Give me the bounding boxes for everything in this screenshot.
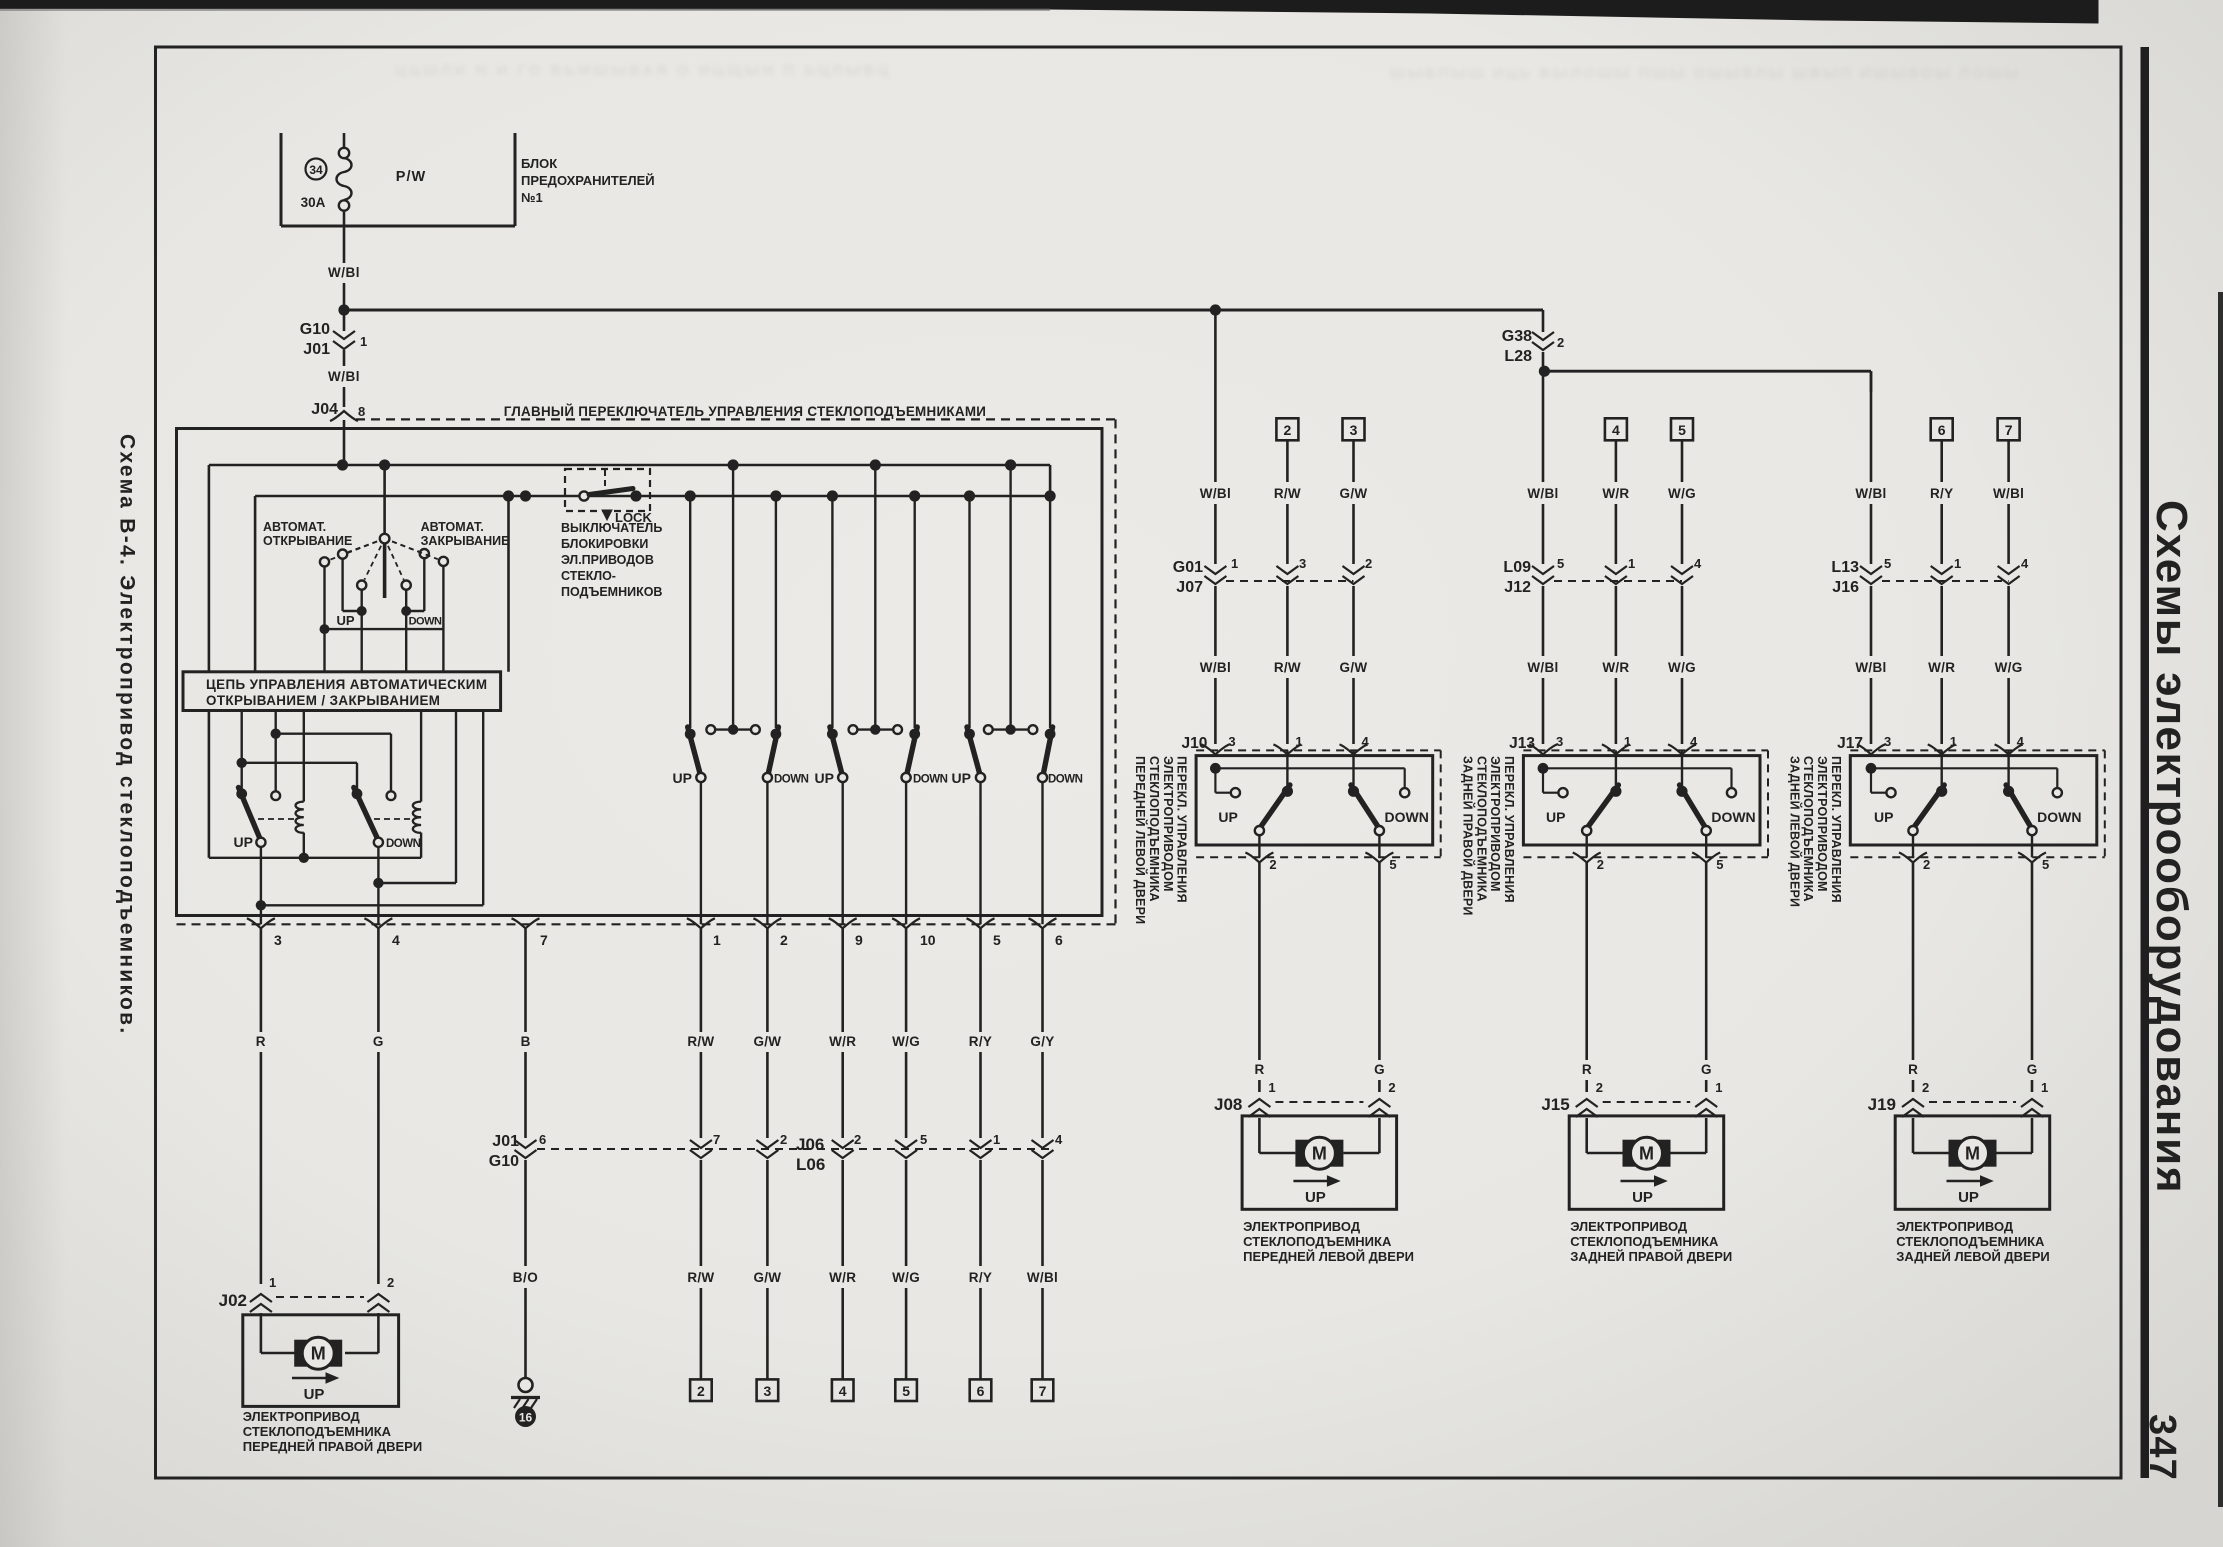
svg-text:2: 2 bbox=[1922, 1080, 1929, 1095]
svg-text:1: 1 bbox=[1268, 1080, 1275, 1095]
svg-text:2: 2 bbox=[1284, 422, 1292, 438]
svg-text:W/Bl: W/Bl bbox=[328, 369, 360, 384]
svg-text:ПОДЪЕМНИКОВ: ПОДЪЕМНИКОВ bbox=[561, 585, 662, 599]
svg-text:J06: J06 bbox=[796, 1135, 824, 1154]
svg-text:ПЕРЕКЛ. УПРАВЛЕНИЯ: ПЕРЕКЛ. УПРАВЛЕНИЯ bbox=[1829, 756, 1843, 903]
svg-text:UP: UP bbox=[1874, 809, 1893, 825]
svg-text:7: 7 bbox=[1039, 1383, 1047, 1399]
svg-text:UP: UP bbox=[673, 770, 692, 786]
svg-text:ПЕРЕКЛ. УПРАВЛЕНИЯ: ПЕРЕКЛ. УПРАВЛЕНИЯ bbox=[1175, 756, 1189, 903]
svg-text:СТЕКЛОПОДЪЕМНИКА: СТЕКЛОПОДЪЕМНИКА bbox=[1243, 1234, 1392, 1249]
svg-text:W/Bl: W/Bl bbox=[1027, 1270, 1058, 1285]
svg-text:ЭЛЕКТРОПРИВОД: ЭЛЕКТРОПРИВОД bbox=[1570, 1219, 1688, 1234]
svg-text:347: 347 bbox=[2141, 1414, 2183, 1481]
svg-text:30A: 30A bbox=[301, 195, 326, 210]
svg-text:4: 4 bbox=[1055, 1132, 1063, 1147]
svg-text:ЭЛЕКТРОПРИВОДОМ: ЭЛЕКТРОПРИВОДОМ bbox=[1488, 756, 1502, 892]
svg-text:UP: UP bbox=[304, 1386, 325, 1403]
svg-text:3: 3 bbox=[1556, 734, 1563, 749]
svg-text:ПЕРЕДНЕЙ ЛЕВОЙ ДВЕРИ: ПЕРЕДНЕЙ ЛЕВОЙ ДВЕРИ bbox=[1243, 1249, 1414, 1264]
svg-text:8: 8 bbox=[358, 404, 365, 419]
svg-text:ПРЕДОХРАНИТЕЛЕЙ: ПРЕДОХРАНИТЕЛЕЙ bbox=[521, 173, 655, 188]
svg-text:DOWN: DOWN bbox=[1385, 809, 1429, 825]
svg-text:7: 7 bbox=[713, 1132, 720, 1147]
svg-text:ЭЛЕКТРОПРИВОДОМ: ЭЛЕКТРОПРИВОДОМ bbox=[1161, 756, 1175, 892]
svg-text:UP: UP bbox=[1305, 1189, 1326, 1206]
svg-text:2: 2 bbox=[697, 1383, 705, 1399]
svg-text:DOWN: DOWN bbox=[386, 838, 421, 850]
svg-text:Схема В-4. Электропривод стекл: Схема В-4. Электропривод стеклоподъемник… bbox=[116, 434, 139, 1036]
svg-text:ЭЛЕКТРОПРИВОДОМ: ЭЛЕКТРОПРИВОДОМ bbox=[1815, 756, 1829, 892]
svg-text:3: 3 bbox=[1884, 734, 1891, 749]
svg-text:R/Y: R/Y bbox=[1930, 486, 1953, 501]
svg-text:W/R: W/R bbox=[829, 1270, 856, 1285]
svg-text:W/R: W/R bbox=[1928, 660, 1955, 675]
svg-text:3: 3 bbox=[1228, 734, 1235, 749]
svg-text:1: 1 bbox=[993, 1132, 1000, 1147]
svg-text:G/Y: G/Y bbox=[1030, 1034, 1054, 1049]
svg-text:G/W: G/W bbox=[753, 1034, 781, 1049]
svg-text:5: 5 bbox=[920, 1132, 927, 1147]
svg-text:UP: UP bbox=[1632, 1189, 1653, 1206]
svg-text:UP: UP bbox=[1546, 809, 1565, 825]
svg-text:W/Bl: W/Bl bbox=[1993, 486, 2024, 501]
svg-text:ПЕРЕДНЕЙ ПРАВОЙ ДВЕРИ: ПЕРЕДНЕЙ ПРАВОЙ ДВЕРИ bbox=[243, 1439, 422, 1454]
svg-text:ЭЛЕКТРОПРИВОД: ЭЛЕКТРОПРИВОД bbox=[1896, 1219, 2014, 1234]
svg-text:4: 4 bbox=[2021, 556, 2029, 571]
svg-text:UP: UP bbox=[1958, 1189, 1979, 1206]
svg-text:B/O: B/O bbox=[513, 1270, 539, 1285]
svg-text:4: 4 bbox=[1694, 556, 1702, 571]
svg-text:ЦЦШЛИ Н И ГО ВЬМШЫВАЯ О ИЦЩЫН: ЦЦШЛИ Н И ГО ВЬМШЫВАЯ О ИЦЩЫН П ЬЦЛЫВЦ bbox=[395, 62, 891, 79]
svg-text:СТЕКЛОПОДЪЕМНИКА: СТЕКЛОПОДЪЕМНИКА bbox=[1474, 756, 1488, 902]
svg-text:G10: G10 bbox=[300, 321, 330, 338]
svg-text:ЭЛ.ПРИВОДОВ: ЭЛ.ПРИВОДОВ bbox=[561, 553, 654, 567]
svg-text:J01: J01 bbox=[303, 341, 330, 358]
svg-text:3: 3 bbox=[1299, 556, 1306, 571]
svg-text:2: 2 bbox=[1557, 335, 1564, 350]
svg-text:R/W: R/W bbox=[1274, 486, 1301, 501]
svg-text:5: 5 bbox=[902, 1383, 910, 1399]
svg-text:2: 2 bbox=[780, 932, 788, 948]
svg-text:W/Bl: W/Bl bbox=[1527, 660, 1558, 675]
svg-text:5: 5 bbox=[1678, 422, 1686, 438]
svg-text:ЗАДНЕЙ ПРАВОЙ ДВЕРИ: ЗАДНЕЙ ПРАВОЙ ДВЕРИ bbox=[1461, 756, 1476, 916]
svg-text:J15: J15 bbox=[1541, 1095, 1569, 1114]
svg-text:J04: J04 bbox=[311, 401, 338, 418]
svg-text:L13: L13 bbox=[1831, 559, 1859, 576]
svg-text:W/Bl: W/Bl bbox=[1527, 486, 1558, 501]
svg-text:W/G: W/G bbox=[1668, 660, 1696, 675]
svg-text:W/Bl: W/Bl bbox=[328, 265, 360, 280]
svg-text:DOWN: DOWN bbox=[1711, 809, 1755, 825]
svg-text:J13: J13 bbox=[1509, 735, 1535, 752]
svg-text:L28: L28 bbox=[1504, 348, 1532, 365]
svg-text:J17: J17 bbox=[1837, 735, 1863, 752]
svg-text:4: 4 bbox=[392, 932, 400, 948]
svg-text:5: 5 bbox=[1716, 857, 1723, 872]
svg-text:W/Bl: W/Bl bbox=[1855, 486, 1886, 501]
svg-text:G38: G38 bbox=[1502, 328, 1532, 345]
svg-text:G/W: G/W bbox=[1340, 486, 1368, 501]
svg-text:R/W: R/W bbox=[687, 1034, 714, 1049]
svg-text:DOWN: DOWN bbox=[2037, 809, 2081, 825]
svg-text:2: 2 bbox=[387, 1275, 394, 1290]
svg-text:W/R: W/R bbox=[1602, 660, 1629, 675]
svg-text:J02: J02 bbox=[219, 1291, 247, 1310]
svg-text:3: 3 bbox=[764, 1383, 772, 1399]
svg-text:4: 4 bbox=[1612, 422, 1620, 438]
svg-text:W/R: W/R bbox=[1602, 486, 1629, 501]
svg-text:J08: J08 bbox=[1214, 1095, 1242, 1114]
svg-text:7: 7 bbox=[540, 932, 548, 948]
svg-text:6: 6 bbox=[977, 1383, 985, 1399]
svg-text:L06: L06 bbox=[796, 1155, 825, 1174]
svg-text:G/W: G/W bbox=[1340, 660, 1368, 675]
svg-text:UP: UP bbox=[815, 770, 834, 786]
svg-text:СТЕКЛОПОДЪЕМНИКА: СТЕКЛОПОДЪЕМНИКА bbox=[1896, 1234, 2045, 1249]
svg-text:B: B bbox=[521, 1034, 531, 1049]
svg-text:W/G: W/G bbox=[1668, 486, 1696, 501]
svg-text:DOWN: DOWN bbox=[409, 616, 442, 628]
svg-text:2: 2 bbox=[1365, 556, 1372, 571]
svg-text:СТЕКЛОПОДЪЕМНИКА: СТЕКЛОПОДЪЕМНИКА bbox=[1147, 756, 1161, 902]
svg-text:2: 2 bbox=[1597, 857, 1604, 872]
svg-text:5: 5 bbox=[2042, 857, 2049, 872]
svg-text:G/W: G/W bbox=[753, 1270, 781, 1285]
svg-text:3: 3 bbox=[274, 932, 282, 948]
svg-text:1: 1 bbox=[2041, 1080, 2048, 1095]
svg-text:1: 1 bbox=[1715, 1080, 1722, 1095]
svg-text:W/G: W/G bbox=[892, 1034, 920, 1049]
svg-text:БЛОК: БЛОК bbox=[521, 156, 557, 171]
svg-text:ЗАКРЫВАНИЕ: ЗАКРЫВАНИЕ bbox=[421, 534, 510, 548]
svg-text:3: 3 bbox=[1350, 422, 1358, 438]
svg-text:1: 1 bbox=[1628, 556, 1635, 571]
svg-text:10: 10 bbox=[920, 932, 936, 948]
svg-text:UP: UP bbox=[1218, 809, 1237, 825]
svg-text:ОТКРЫВАНИЕ: ОТКРЫВАНИЕ bbox=[263, 534, 352, 548]
svg-text:СТЕКЛОПОДЪЕМНИКА: СТЕКЛОПОДЪЕМНИКА bbox=[243, 1424, 392, 1439]
svg-text:СТЕКЛОПОДЪЕМНИКА: СТЕКЛОПОДЪЕМНИКА bbox=[1801, 756, 1815, 902]
svg-text:2: 2 bbox=[1388, 1080, 1395, 1095]
svg-text:R/Y: R/Y bbox=[969, 1034, 992, 1049]
svg-text:P/W: P/W bbox=[396, 169, 426, 185]
svg-text:G: G bbox=[2027, 1062, 2038, 1077]
svg-text:G: G bbox=[373, 1034, 384, 1049]
svg-text:ПЕРЕДНЕЙ ЛЕВОЙ ДВЕРИ: ПЕРЕДНЕЙ ЛЕВОЙ ДВЕРИ bbox=[1133, 756, 1148, 924]
svg-text:R: R bbox=[256, 1034, 266, 1049]
svg-text:6: 6 bbox=[539, 1132, 546, 1147]
svg-text:1: 1 bbox=[1231, 556, 1238, 571]
svg-text:ЦЕПЬ УПРАВЛЕНИЯ АВТОМАТИЧЕСКИМ: ЦЕПЬ УПРАВЛЕНИЯ АВТОМАТИЧЕСКИМ bbox=[206, 677, 487, 692]
svg-text:W/R: W/R bbox=[829, 1034, 856, 1049]
svg-text:6: 6 bbox=[1938, 422, 1946, 438]
svg-text:2: 2 bbox=[854, 1132, 861, 1147]
svg-text:1: 1 bbox=[360, 334, 367, 349]
svg-text:R/Y: R/Y bbox=[969, 1270, 992, 1285]
svg-text:M: M bbox=[311, 1344, 326, 1364]
svg-text:1: 1 bbox=[1954, 556, 1961, 571]
svg-text:W/G: W/G bbox=[1995, 660, 2023, 675]
svg-text:R/W: R/W bbox=[687, 1270, 714, 1285]
svg-text:R: R bbox=[1255, 1062, 1265, 1077]
svg-text:ГЛАВНЫЙ ПЕРЕКЛЮЧАТЕЛЬ УПРАВЛЕН: ГЛАВНЫЙ ПЕРЕКЛЮЧАТЕЛЬ УПРАВЛЕНИЯ СТЕКЛОП… bbox=[504, 404, 986, 419]
svg-text:R/W: R/W bbox=[1274, 660, 1301, 675]
svg-text:J16: J16 bbox=[1832, 579, 1859, 596]
svg-text:2: 2 bbox=[1269, 857, 1276, 872]
svg-text:ЗАДНЕЙ ЛЕВОЙ ДВЕРИ: ЗАДНЕЙ ЛЕВОЙ ДВЕРИ bbox=[1896, 1249, 2050, 1264]
svg-text:UP: UP bbox=[952, 770, 971, 786]
svg-text:4: 4 bbox=[839, 1383, 847, 1399]
svg-text:9: 9 bbox=[855, 932, 863, 948]
svg-text:7: 7 bbox=[2005, 422, 2013, 438]
svg-text:W/Bl: W/Bl bbox=[1200, 486, 1231, 501]
svg-text:UP: UP bbox=[234, 834, 253, 850]
svg-text:ЭЛЕКТРОПРИВОД: ЭЛЕКТРОПРИВОД bbox=[1243, 1219, 1361, 1234]
svg-text:ШЫВПЫШ ИЦЬ ВЫЛОШЫ ПШЫ ОШЫВЛЫ Ш: ШЫВПЫШ ИЦЬ ВЫЛОШЫ ПШЫ ОШЫВЛЫ ШВЫП ИШЫВОЫ… bbox=[1390, 65, 2021, 82]
svg-text:M: M bbox=[1965, 1144, 1980, 1164]
svg-text:16: 16 bbox=[519, 1411, 533, 1425]
svg-text:W/G: W/G bbox=[892, 1270, 920, 1285]
svg-text:ОТКРЫВАНИЕМ / ЗАКРЫВАНИЕМ: ОТКРЫВАНИЕМ / ЗАКРЫВАНИЕМ bbox=[206, 693, 440, 708]
svg-text:J12: J12 bbox=[1504, 579, 1531, 596]
svg-text:ЗАДНЕЙ ЛЕВОЙ ДВЕРИ: ЗАДНЕЙ ЛЕВОЙ ДВЕРИ bbox=[1787, 756, 1802, 907]
svg-text:ЭЛЕКТРОПРИВОД: ЭЛЕКТРОПРИВОД bbox=[243, 1409, 361, 1424]
svg-text:Схемы электрооборудования: Схемы электрооборудования bbox=[2147, 500, 2196, 1194]
svg-text:2: 2 bbox=[1596, 1080, 1603, 1095]
svg-text:DOWN: DOWN bbox=[913, 774, 948, 786]
svg-text:5: 5 bbox=[1389, 857, 1396, 872]
svg-text:DOWN: DOWN bbox=[774, 774, 809, 786]
svg-text:G: G bbox=[1701, 1062, 1712, 1077]
svg-text:G10: G10 bbox=[489, 1153, 519, 1170]
svg-text:СТЕКЛО-: СТЕКЛО- bbox=[561, 569, 616, 583]
svg-text:M: M bbox=[1639, 1144, 1654, 1164]
svg-text:UP: UP bbox=[336, 613, 354, 628]
svg-text:L09: L09 bbox=[1503, 559, 1531, 576]
svg-text:1: 1 bbox=[269, 1275, 276, 1290]
svg-text:W/Bl: W/Bl bbox=[1855, 660, 1886, 675]
svg-text:АВТОМАТ.: АВТОМАТ. bbox=[263, 520, 326, 534]
svg-text:5: 5 bbox=[1557, 556, 1564, 571]
svg-text:2: 2 bbox=[780, 1132, 787, 1147]
svg-text:ПЕРЕКЛ. УПРАВЛЕНИЯ: ПЕРЕКЛ. УПРАВЛЕНИЯ bbox=[1502, 756, 1516, 903]
svg-text:W/Bl: W/Bl bbox=[1200, 660, 1231, 675]
svg-text:R: R bbox=[1908, 1062, 1918, 1077]
svg-text:6: 6 bbox=[1055, 932, 1063, 948]
svg-text:2: 2 bbox=[1923, 857, 1930, 872]
svg-text:J07: J07 bbox=[1176, 579, 1203, 596]
svg-text:R: R bbox=[1582, 1062, 1592, 1077]
svg-text:ВЫКЛЮЧАТЕЛЬ: ВЫКЛЮЧАТЕЛЬ bbox=[561, 521, 662, 535]
svg-text:34: 34 bbox=[309, 163, 323, 177]
svg-text:ЗАДНЕЙ ПРАВОЙ ДВЕРИ: ЗАДНЕЙ ПРАВОЙ ДВЕРИ bbox=[1570, 1249, 1732, 1264]
svg-text:5: 5 bbox=[993, 932, 1001, 948]
svg-text:G: G bbox=[1374, 1062, 1385, 1077]
svg-text:СТЕКЛОПОДЪЕМНИКА: СТЕКЛОПОДЪЕМНИКА bbox=[1570, 1234, 1719, 1249]
svg-text:№1: №1 bbox=[521, 190, 543, 205]
svg-text:АВТОМАТ.: АВТОМАТ. bbox=[421, 520, 484, 534]
svg-text:J19: J19 bbox=[1868, 1095, 1896, 1114]
svg-text:БЛОКИРОВКИ: БЛОКИРОВКИ bbox=[561, 537, 648, 551]
svg-text:1: 1 bbox=[713, 932, 721, 948]
svg-text:5: 5 bbox=[1884, 556, 1891, 571]
svg-text:M: M bbox=[1312, 1144, 1327, 1164]
svg-text:DOWN: DOWN bbox=[1048, 774, 1083, 786]
svg-text:G01: G01 bbox=[1173, 559, 1203, 576]
